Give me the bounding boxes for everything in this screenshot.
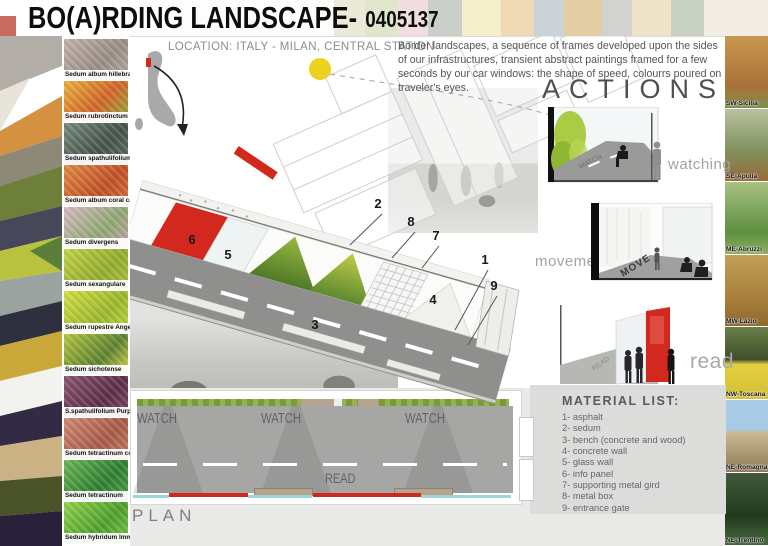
sedum-item: Sedum tetractinum coral Reef xyxy=(64,418,128,459)
arrow-head-icon xyxy=(177,124,188,136)
plan-glass-segment xyxy=(133,495,169,498)
plan-wood-segment xyxy=(358,399,378,406)
plan-gap xyxy=(334,399,342,406)
plan-infopanel-segment xyxy=(169,493,248,497)
entrance-gate xyxy=(468,281,527,356)
callout-4: 4 xyxy=(429,292,437,307)
region-item: MW-Lazio xyxy=(725,255,768,327)
watching-label: watching xyxy=(668,156,731,173)
sedum-item: Sedum sichotense xyxy=(64,334,128,375)
sedum-label: Sedum album coral carpet xyxy=(64,196,130,206)
material-item: 6- info panel xyxy=(562,469,726,480)
region-label: NW-Toscana xyxy=(725,391,768,398)
sedum-label: Sedum tetractinum coral Reef xyxy=(64,449,130,459)
material-item: 9- entrance gate xyxy=(562,503,726,514)
region-photo xyxy=(725,255,768,327)
plan-gate-notch xyxy=(519,459,534,501)
wall-bar xyxy=(548,107,554,182)
wall-bar xyxy=(591,203,599,280)
sedum-item: S.spathulifolium Purpureum xyxy=(64,376,128,417)
sedum-item: Sedum tetractinum xyxy=(64,460,128,501)
callout-2: 2 xyxy=(374,196,381,211)
region-label: MW-Lazio xyxy=(725,318,768,325)
board-title-code: 0405137 xyxy=(365,2,438,33)
read-label: read xyxy=(690,350,734,374)
action-watching-diagram: WATCH xyxy=(548,107,670,185)
sedum-label: Sedum spathulifolium xyxy=(64,154,130,164)
callout-6: 6 xyxy=(188,232,195,247)
sedum-item: Sedum rubrotinctum xyxy=(64,81,128,122)
sedum-item: Sedum rupestre Angelina xyxy=(64,291,128,332)
location-label: LOCATION: ITALY - MILAN, CENTRAL STATION xyxy=(168,41,435,53)
plan-wood-segment xyxy=(301,399,334,406)
sedum-label: Sedum tetractinum xyxy=(64,491,130,501)
plan-title: PLAN xyxy=(132,506,196,526)
material-item: 4- concrete wall xyxy=(562,446,726,457)
plan-infopanel-segment xyxy=(313,493,421,497)
region-item: SE-Apulia xyxy=(725,109,768,181)
region-item: ME-Abruzzi xyxy=(725,182,768,254)
region-photo xyxy=(725,109,768,181)
plan-watch-label-2: WATCH xyxy=(261,410,301,427)
plan-watch-label-1: WATCH xyxy=(137,410,177,427)
material-item: 3- bench (concrete and wood) xyxy=(562,435,726,446)
material-item: 5- glass wall xyxy=(562,457,726,468)
sedum-label: Sedum sexangulare xyxy=(64,280,130,290)
plan-watch-label-3: WATCH xyxy=(405,410,445,427)
plan-center-line xyxy=(143,463,507,466)
sun-marker-icon xyxy=(309,58,331,80)
sedum-item: Sedum divergens xyxy=(64,207,128,248)
plan-read-label: READ xyxy=(325,470,355,486)
region-label: SW-Sicilia xyxy=(725,100,768,107)
region-label: NE-Trentino xyxy=(725,537,768,544)
sedum-label: Sedum rubrotinctum xyxy=(64,112,130,122)
sedum-item: Sedum album hillebrandii xyxy=(64,39,128,80)
sedum-item: Sedum hybridum Immergrünchen xyxy=(64,502,128,543)
concrete-wall-triangle xyxy=(405,274,483,337)
callout-5: 5 xyxy=(224,247,231,262)
material-list-title: MATERIAL LIST: xyxy=(562,394,726,408)
region-label: NE-Romagna xyxy=(725,464,768,471)
competition-board: BO(A)RDING LANDSCAPE- 0405137 Sedum albu… xyxy=(0,0,768,546)
info-panel-red xyxy=(151,199,228,263)
station-platform-photo xyxy=(388,88,538,233)
sedum-label: Sedum album hillebrandii xyxy=(64,70,130,80)
action-movement-diagram: MOVE xyxy=(591,203,713,281)
region-label: ME-Abruzzi xyxy=(725,246,768,253)
sedum-item: Sedum sexangulare xyxy=(64,249,128,290)
actions-heading: ACTIONS xyxy=(542,74,725,105)
plan-glass-segment xyxy=(421,495,511,498)
plan-gate-notch xyxy=(519,417,534,457)
sedum-species-panel: Sedum album hillebrandii Sedum rubrotinc… xyxy=(62,36,130,546)
material-item: 8- metal box xyxy=(562,491,726,502)
callout-9: 9 xyxy=(490,278,497,293)
region-item: SW-Sicilia xyxy=(725,36,768,108)
material-item: 7- supporting metal gird xyxy=(562,480,726,491)
material-item: 1- asphalt xyxy=(562,412,726,423)
sedum-label: Sedum rupestre Angelina xyxy=(64,323,130,333)
material-list: 1- asphalt 2- sedum 3- bench (concrete a… xyxy=(562,412,726,514)
sedum-label: Sedum sichotense xyxy=(64,365,130,375)
region-item: NE-Romagna xyxy=(725,400,768,472)
site-red-bar xyxy=(234,146,278,180)
region-photo xyxy=(725,182,768,254)
plan-glass-segment xyxy=(248,495,312,498)
material-item: 2- sedum xyxy=(562,423,726,434)
sedum-item: Sedum spathulifolium xyxy=(64,123,128,164)
sedum-label: Sedum divergens xyxy=(64,238,130,248)
sedum-item: Sedum album coral carpet xyxy=(64,165,128,206)
italy-regions-panel: SW-Sicilia SE-Apulia ME-Abruzzi MW-Lazio… xyxy=(725,36,768,546)
region-photo xyxy=(725,36,768,108)
left-mosaic-strip xyxy=(0,36,62,546)
glass-wall-panel xyxy=(203,214,268,275)
region-photo xyxy=(725,473,768,545)
italy-map-icon xyxy=(135,51,188,136)
plan-drawing: WATCH WATCH WATCH READ xyxy=(130,390,522,505)
material-list-panel: MATERIAL LIST: 1- asphalt 2- sedum 3- be… xyxy=(530,385,726,514)
region-item: NE-Trentino xyxy=(725,473,768,545)
callout-1: 1 xyxy=(481,252,488,267)
action-read-diagram: READ xyxy=(558,303,676,387)
region-label: SE-Apulia xyxy=(725,173,768,180)
gravel-dots xyxy=(178,193,249,218)
sedum-label: Sedum hybridum Immergrünchen xyxy=(64,533,130,543)
board-title: BO(A)RDING LANDSCAPE- 0405137 xyxy=(28,0,439,36)
region-photo xyxy=(725,400,768,472)
sedum-label: S.spathulifolium Purpureum xyxy=(64,407,130,417)
board-title-text: BO(A)RDING LANDSCAPE- xyxy=(28,0,357,36)
